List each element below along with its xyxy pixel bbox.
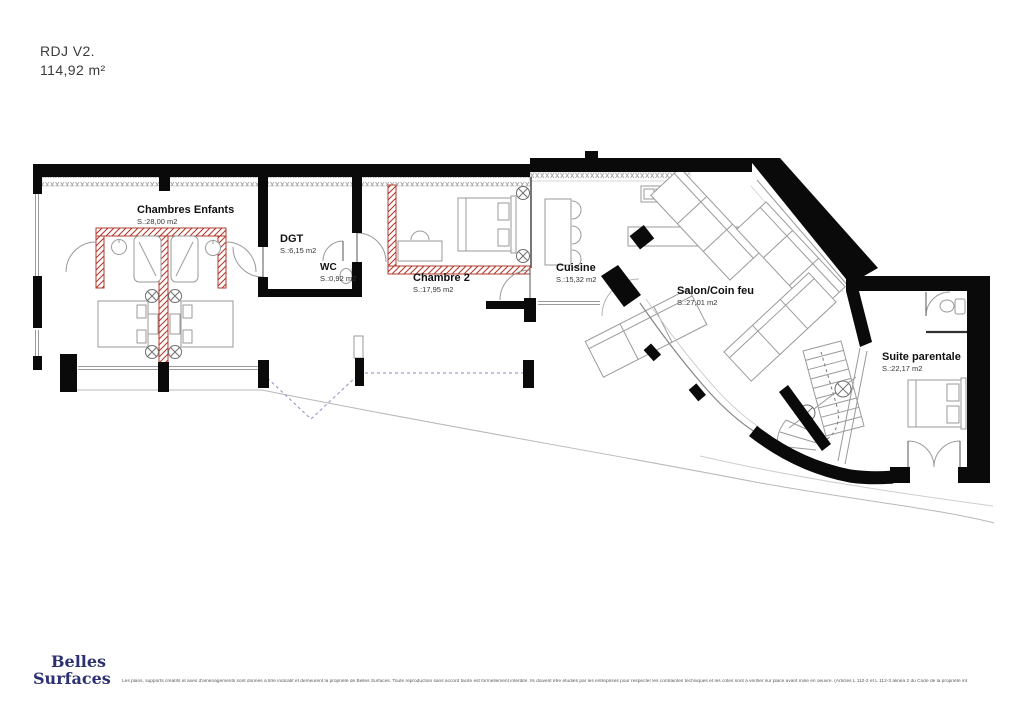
floor-plan-page: RDJ V2. 114,92 m² (0, 0, 1024, 724)
logo-line1: Belles (51, 653, 111, 670)
legal-disclaimer: Les plans, supports créatifs et axes d'a… (122, 679, 967, 684)
logo-line2: Surfaces (33, 670, 111, 687)
open-bay-dashed (263, 373, 523, 419)
furniture-chambre-2 (398, 196, 516, 261)
floor-plan-drawing (0, 0, 1024, 724)
belles-surfaces-logo: Belles Surfaces (33, 653, 111, 687)
